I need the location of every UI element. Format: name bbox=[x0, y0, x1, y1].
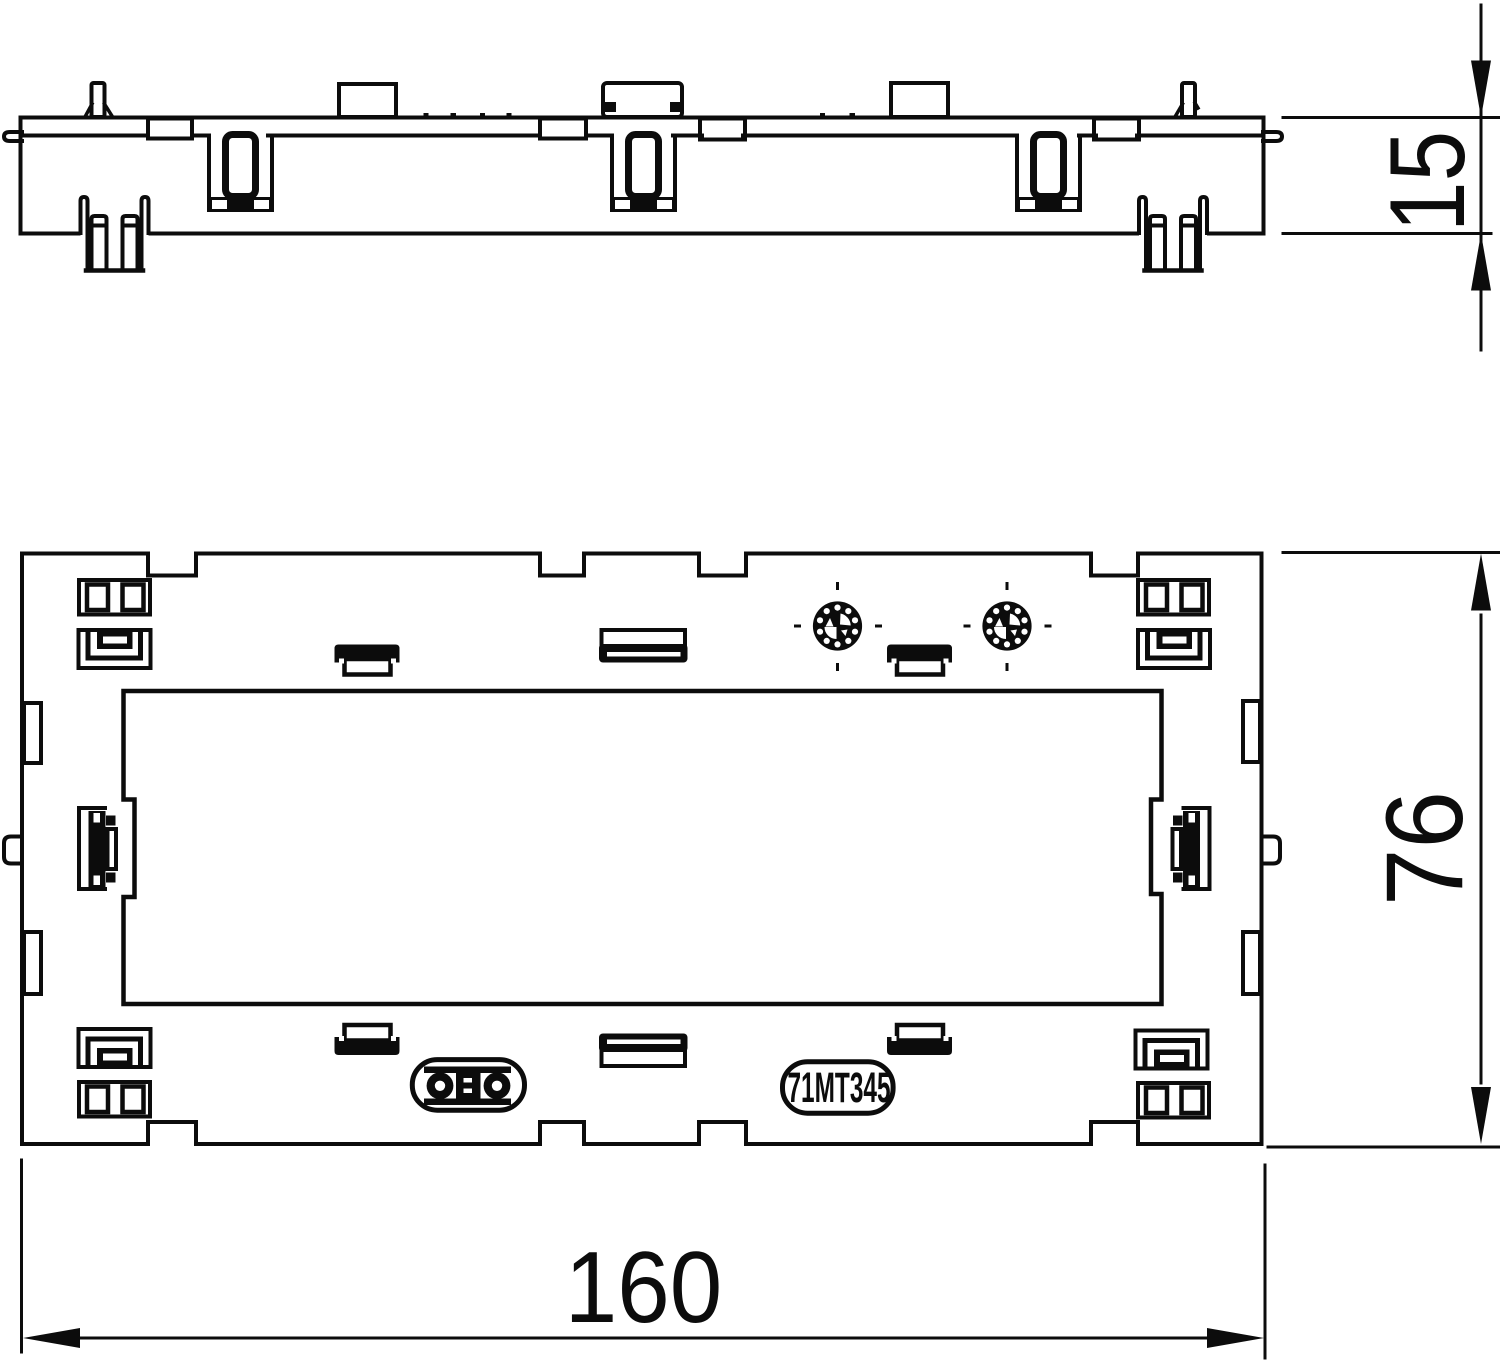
svg-text:76: 76 bbox=[1362, 791, 1486, 906]
svg-text:160: 160 bbox=[565, 1230, 722, 1344]
svg-text:71MT345: 71MT345 bbox=[788, 1065, 891, 1112]
svg-text:15: 15 bbox=[1368, 131, 1488, 232]
